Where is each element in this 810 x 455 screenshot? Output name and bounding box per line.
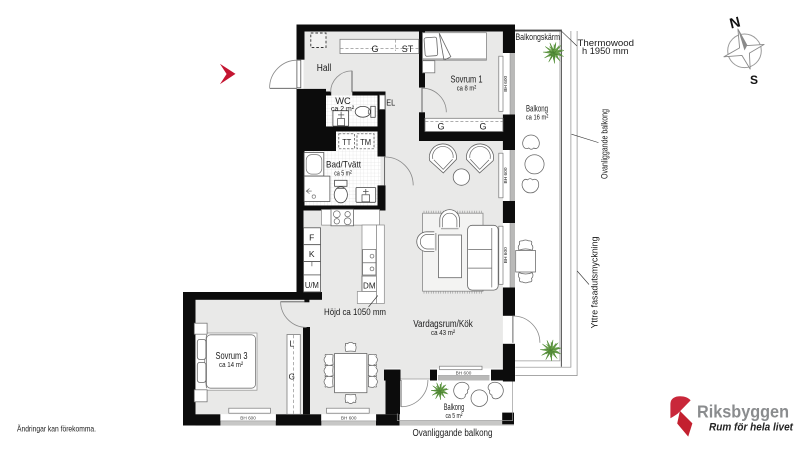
svg-text:S: S (750, 73, 758, 87)
svg-text:BH 600: BH 600 (503, 247, 509, 263)
svg-text:Hall: Hall (317, 63, 332, 74)
svg-text:ca 5 m²: ca 5 m² (446, 411, 463, 420)
svg-text:G: G (289, 373, 295, 382)
svg-text:BH 600: BH 600 (240, 416, 256, 421)
svg-text:G: G (479, 121, 486, 131)
svg-text:L: L (289, 340, 294, 349)
svg-text:ca 16 m²: ca 16 m² (526, 112, 549, 121)
svg-text:TT: TT (342, 138, 351, 147)
svg-text:Rum för hela livet: Rum för hela livet (709, 421, 794, 433)
svg-text:ca 43 m²: ca 43 m² (431, 328, 455, 337)
svg-text:ca 2 m²: ca 2 m² (331, 104, 354, 113)
svg-text:Ändringar kan förekomma.: Ändringar kan förekomma. (17, 423, 96, 433)
svg-text:TM: TM (360, 138, 371, 147)
svg-text:BH 600: BH 600 (456, 370, 472, 375)
svg-text:U/M: U/M (305, 281, 319, 290)
svg-text:DM: DM (363, 281, 376, 290)
svg-text:Höjd ca 1050 mm: Höjd ca 1050 mm (324, 307, 386, 317)
svg-text:Ovanliggande balkong: Ovanliggande balkong (600, 109, 610, 179)
svg-text:K: K (309, 249, 315, 259)
svg-text:h 1950 mm: h 1950 mm (582, 46, 629, 56)
svg-text:Yttre fasadutsmyckning: Yttre fasadutsmyckning (590, 236, 600, 328)
svg-text:ST: ST (402, 44, 414, 54)
svg-text:F: F (309, 232, 314, 242)
svg-text:G: G (437, 121, 444, 131)
svg-text:Balkongskärm: Balkongskärm (516, 32, 561, 42)
svg-text:BH 600: BH 600 (341, 416, 357, 421)
svg-text:G: G (371, 44, 378, 54)
svg-text:Ovanliggande balkong: Ovanliggande balkong (413, 428, 493, 439)
svg-text:BH 600: BH 600 (503, 75, 509, 91)
svg-text:ca 14 m²: ca 14 m² (219, 360, 243, 369)
svg-text:Riksbyggen: Riksbyggen (697, 401, 789, 421)
svg-text:ca 8 m²: ca 8 m² (457, 84, 477, 93)
svg-text:BH 600: BH 600 (503, 167, 509, 183)
svg-text:ca 5 m²: ca 5 m² (334, 168, 352, 177)
svg-text:EL: EL (386, 99, 395, 108)
